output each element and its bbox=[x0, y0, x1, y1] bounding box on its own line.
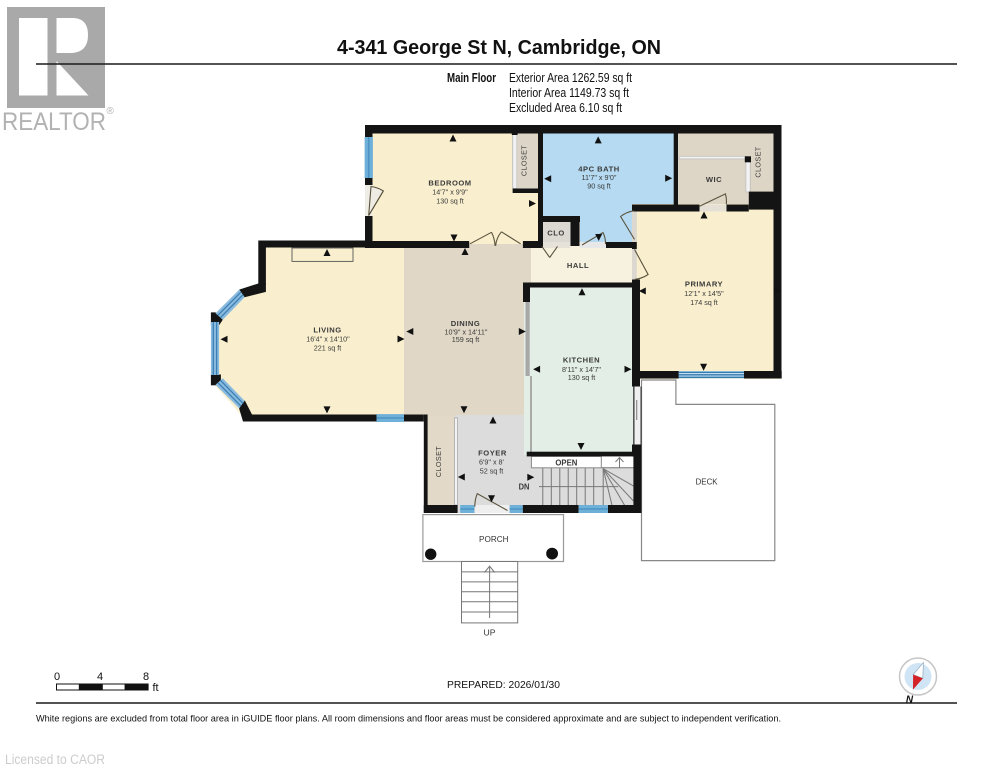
svg-text:CLOSET: CLOSET bbox=[520, 145, 529, 176]
svg-text:KITCHEN: KITCHEN bbox=[563, 356, 600, 365]
svg-text:White regions are excluded fro: White regions are excluded from total fl… bbox=[36, 714, 781, 725]
svg-text:DINING: DINING bbox=[451, 319, 481, 328]
svg-text:HALL: HALL bbox=[567, 261, 589, 270]
svg-text:CLOSET: CLOSET bbox=[434, 446, 443, 477]
svg-text:FOYER: FOYER bbox=[478, 448, 507, 457]
svg-text:CLO: CLO bbox=[547, 229, 565, 238]
svg-text:PRIMARY: PRIMARY bbox=[685, 280, 723, 289]
svg-text:130 sq ft: 130 sq ft bbox=[568, 373, 596, 382]
svg-text:221 sq ft: 221 sq ft bbox=[314, 343, 342, 352]
svg-text:OPEN: OPEN bbox=[555, 457, 577, 467]
svg-text:LIVING: LIVING bbox=[313, 326, 341, 335]
svg-text:Exterior Area 1262.59 sq ft: Exterior Area 1262.59 sq ft bbox=[509, 70, 632, 85]
svg-text:159 sq ft: 159 sq ft bbox=[452, 335, 480, 344]
svg-text:PREPARED: 2026/01/30: PREPARED: 2026/01/30 bbox=[447, 680, 560, 691]
svg-text:Interior Area 1149.73 sq ft: Interior Area 1149.73 sq ft bbox=[509, 85, 629, 100]
svg-text:REALTOR: REALTOR bbox=[2, 108, 106, 136]
svg-text:PORCH: PORCH bbox=[479, 534, 509, 544]
svg-text:ft: ft bbox=[153, 682, 159, 694]
svg-text:6'9" x 8': 6'9" x 8' bbox=[479, 457, 505, 466]
svg-text:UP: UP bbox=[484, 628, 496, 638]
svg-text:N: N bbox=[906, 695, 914, 706]
svg-text:BEDROOM: BEDROOM bbox=[428, 179, 471, 188]
svg-text:WIC: WIC bbox=[706, 175, 722, 184]
svg-text:DECK: DECK bbox=[696, 476, 718, 486]
svg-text:8: 8 bbox=[143, 671, 149, 683]
svg-text:®: ® bbox=[107, 106, 115, 117]
svg-text:Excluded Area 6.10 sq ft: Excluded Area 6.10 sq ft bbox=[509, 100, 622, 115]
svg-text:CLOSET: CLOSET bbox=[754, 146, 763, 177]
svg-text:0: 0 bbox=[54, 671, 60, 683]
svg-text:12'1" x 14'5": 12'1" x 14'5" bbox=[684, 289, 724, 298]
svg-text:4-341 George St N, Cambridge,: 4-341 George St N, Cambridge, ON bbox=[337, 36, 661, 59]
svg-text:Licensed to CAOR: Licensed to CAOR bbox=[5, 752, 105, 767]
svg-text:52 sq ft: 52 sq ft bbox=[480, 466, 504, 475]
svg-text:174 sq ft: 174 sq ft bbox=[690, 298, 718, 307]
svg-text:4PC BATH: 4PC BATH bbox=[578, 165, 619, 174]
svg-text:130 sq ft: 130 sq ft bbox=[436, 197, 464, 206]
svg-text:DN: DN bbox=[519, 483, 530, 492]
svg-text:14'7" x 9'9": 14'7" x 9'9" bbox=[432, 188, 468, 197]
svg-text:90 sq ft: 90 sq ft bbox=[587, 182, 611, 191]
svg-text:Main Floor: Main Floor bbox=[447, 70, 496, 85]
svg-text:4: 4 bbox=[97, 671, 103, 683]
